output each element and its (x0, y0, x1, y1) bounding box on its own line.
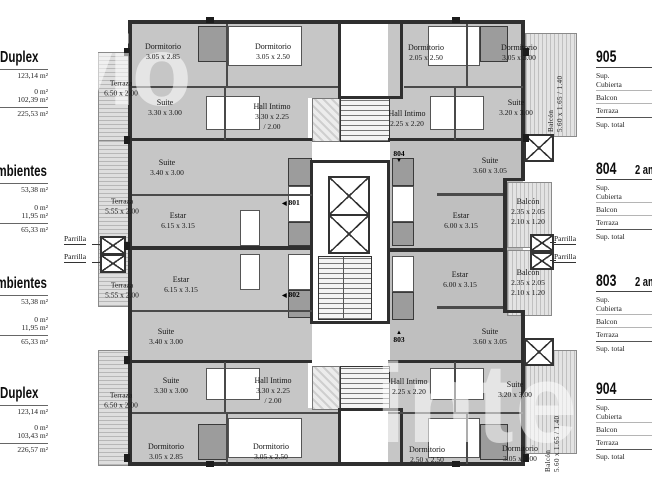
divider (0, 335, 48, 336)
right-block-804: 8042 ambientes Sup. Cubierta Balcon Terr… (596, 160, 652, 241)
room-label: Suite3.40 x 3.00 (149, 327, 183, 347)
area-total: 225,53 m² (0, 110, 48, 119)
parrilla-label: Parrilla (554, 234, 576, 245)
area-value: 102,39 m² (0, 96, 48, 105)
unit-marker-804: 804▼ (393, 150, 404, 164)
wall (400, 408, 403, 466)
wall (132, 138, 312, 141)
balcony-label: Balcón 5.60 x 1.65 / 1.40 (547, 46, 564, 132)
row-label: Terraza (596, 438, 652, 450)
partition (437, 193, 503, 196)
room-label: Dormitorio3.05 x 2.50 (255, 42, 291, 62)
row-label: Sup. (596, 403, 652, 412)
elevator-icon (328, 176, 370, 216)
unit-type: 2 ambientes (635, 274, 652, 289)
row-label: Cubierta (596, 80, 652, 91)
parrilla-label: Parrilla (554, 252, 576, 263)
divider (0, 183, 48, 184)
block-title: Duplex (0, 386, 38, 402)
room-label: Dormitorio3.05 x 3.00 (501, 43, 537, 63)
wall-tick (124, 356, 130, 364)
room-label: Dormitorio3.05 x 2.50 (253, 442, 289, 462)
arrow-down-icon: ▼ (393, 158, 404, 164)
room-label: Balcón2.35 x 2.052.10 x 1.20 (511, 268, 545, 298)
leader-line (92, 262, 100, 263)
partition (466, 414, 468, 464)
row-label: Terraza (596, 106, 652, 118)
terrace-label: Terraza6.50 x 2.00 (104, 390, 138, 410)
area-value: 103,43 m² (0, 432, 48, 441)
wall (387, 160, 390, 324)
divider (0, 443, 48, 444)
row-label: Sup. (596, 295, 652, 304)
terrace-label: Terraza5.55 x 2.00 (105, 280, 139, 300)
partition (454, 362, 456, 412)
wall (503, 178, 525, 181)
partition (226, 414, 228, 464)
wall (338, 96, 403, 99)
wall-tick (206, 17, 214, 23)
row-label: Sup. total (596, 232, 652, 241)
wall (338, 408, 403, 411)
apartment-bottom-left-ext (308, 408, 340, 464)
leader-line (550, 260, 556, 261)
room-label: Suite3.20 x 3.00 (498, 380, 532, 400)
partition (388, 412, 523, 414)
stair-core-rail (343, 256, 344, 318)
closet-block (392, 222, 414, 246)
room-label: Suite3.40 x 3.00 (150, 158, 184, 178)
wall-tick (523, 134, 529, 142)
wall-tick (452, 17, 460, 23)
unit-marker-802: ◀ 802 (282, 290, 300, 299)
terrace-label: Terraza6.50 x 2.00 (104, 78, 138, 98)
area-value: 123,14 m² (0, 72, 48, 81)
closet-block (392, 292, 414, 320)
stair-top (340, 98, 390, 142)
elevator-icon (328, 214, 370, 254)
stair-bottom (340, 366, 390, 410)
left-block-ambientes-bottom: Ambientes 53,38 m² 0 m² 11,95 m² 65,33 m… (0, 276, 48, 347)
void-hatch-bottom (312, 366, 340, 410)
wall (310, 160, 390, 163)
divider (0, 405, 48, 406)
right-block-803: 8032 ambientes Sup. Cubierta Balcon Terr… (596, 272, 652, 353)
bathroom-block (288, 254, 312, 290)
row-label: Sup. (596, 71, 652, 80)
parrilla-label: Parrilla (64, 252, 86, 263)
area-total: 65,33 m² (0, 226, 48, 235)
bathroom-block (430, 368, 484, 400)
row-label: Sup. total (596, 120, 652, 129)
room-label: Estar6.00 x 3.15 (443, 270, 477, 290)
wall-tick (452, 461, 460, 467)
wall (132, 360, 312, 363)
arrow-left-icon: ◀ (282, 293, 287, 299)
row-label: Balcon (596, 205, 652, 216)
right-block-905: 905 Sup. Cubierta Balcon Terraza Sup. to… (596, 48, 652, 129)
row-label: Sup. total (596, 344, 652, 353)
room-label: Suite3.20 x 3.00 (499, 98, 533, 118)
row-label: Terraza (596, 218, 652, 230)
partition (132, 86, 338, 88)
partition (466, 24, 468, 86)
room-label: Suite3.60 x 3.05 (473, 156, 507, 176)
partition (132, 310, 312, 312)
room-label: Hall Intimo3.30 x 2.25/ 2.00 (254, 376, 291, 406)
room-label: Estar6.15 x 3.15 (164, 275, 198, 295)
unit-number: 904 (596, 380, 616, 397)
divider (0, 69, 48, 70)
closet-block (198, 26, 228, 62)
area-total: 226,57 m² (0, 446, 48, 455)
terrace-label: Terraza5.55 x 2.00 (105, 196, 139, 216)
bathroom-block (392, 186, 414, 222)
row-label: Cubierta (596, 412, 652, 423)
parrilla-label: Parrilla (64, 234, 86, 245)
row-label: Cubierta (596, 304, 652, 315)
wall (132, 246, 312, 250)
block-title: Ambientes (0, 164, 47, 180)
wall (310, 321, 390, 324)
room-label: Suite3.60 x 3.05 (473, 327, 507, 347)
room-label: Estar6.00 x 3.15 (444, 211, 478, 231)
room-label: Dormitorio3.05 x 2.85 (145, 42, 181, 62)
unit-type: 2 ambientes (635, 162, 652, 177)
row-label: Terraza (596, 330, 652, 342)
leader-line (550, 242, 556, 243)
parrilla-box-icon (100, 236, 126, 255)
leader-line (92, 244, 100, 245)
block-title: Ambientes (0, 276, 47, 292)
row-label: Balcon (596, 425, 652, 436)
room-label: Suite3.30 x 3.00 (148, 98, 182, 118)
bathroom-block (430, 96, 484, 130)
area-value: 11,95 m² (0, 324, 48, 333)
kitchen-block (240, 254, 260, 290)
stair-core (318, 256, 372, 320)
partition (404, 86, 523, 88)
area-total: 65,33 m² (0, 338, 48, 347)
closet-block (288, 222, 312, 246)
left-block-duplex-bottom: Duplex 123,14 m² 0 m² 103,43 m² 226,57 m… (0, 386, 48, 455)
partition (224, 362, 226, 412)
room-label: Hall Intimo2.25 x 2.20 (390, 377, 427, 397)
partition (437, 306, 503, 309)
parrilla-box-icon (100, 254, 126, 273)
area-value: 53,38 m² (0, 186, 48, 195)
room-label: Hall Intimo3.30 x 2.25/ 2.00 (253, 102, 290, 132)
row-label: Sup. total (596, 452, 652, 461)
partition (224, 88, 226, 140)
wall (338, 408, 341, 466)
room-label: Estar6.15 x 3.15 (161, 211, 195, 231)
floorplan-page: Duplex 123,14 m² 0 m² 102,39 m² 225,53 m… (0, 0, 652, 480)
balcony-label: Balcón 5.60 x 1.65 / 1.40 (544, 386, 561, 472)
wall-tick (124, 48, 130, 56)
area-value: 123,14 m² (0, 408, 48, 417)
room-label: Hall Intimo2.25 x 2.20 (388, 109, 425, 129)
closet-block (198, 424, 228, 460)
bathroom-block (206, 368, 260, 400)
room-label: Dormitorio3.05 x 3.00 (502, 444, 538, 464)
partition (132, 194, 312, 196)
unit-number: 905 (596, 48, 616, 65)
void-hatch-top (312, 98, 340, 142)
closet-block (288, 158, 312, 186)
wall-tick (124, 454, 130, 462)
service-shaft-icon (524, 338, 554, 366)
unit-number: 803 (596, 272, 616, 289)
left-block-duplex-top: Duplex 123,14 m² 0 m² 102,39 m² 225,53 m… (0, 50, 48, 119)
partition (454, 88, 456, 140)
room-label: Suite3.30 x 3.00 (154, 376, 188, 396)
wall (338, 20, 341, 98)
partition (226, 24, 228, 86)
wall-tick (124, 136, 130, 144)
kitchen-block (240, 210, 260, 246)
right-block-904: 904 Sup. Cubierta Balcon Terraza Sup. to… (596, 380, 652, 461)
block-title: Duplex (0, 50, 38, 66)
divider (0, 107, 48, 108)
wall (400, 20, 403, 98)
room-label: Dormitorio2.05 x 2.50 (408, 43, 444, 63)
wall-tick (124, 242, 130, 250)
bathroom-block (392, 256, 414, 292)
left-block-ambientes-top: Ambientes 53,38 m² 0 m² 11,95 m² 65,33 m… (0, 164, 48, 235)
row-label: Balcon (596, 93, 652, 104)
bathroom-block (206, 96, 260, 130)
unit-number: 804 (596, 160, 616, 177)
wall (503, 178, 507, 312)
row-label: Cubierta (596, 192, 652, 203)
row-label: Balcon (596, 317, 652, 328)
room-label: Dormitorio2.50 x 2.50 (409, 445, 445, 465)
wall-tick (206, 461, 214, 467)
unit-marker-801: ◀ 801 (282, 198, 300, 207)
arrow-left-icon: ◀ (282, 201, 287, 207)
wall (310, 160, 313, 324)
divider (0, 295, 48, 296)
room-label: Balcón2.35 x 2.052.10 x 1.20 (511, 197, 545, 227)
wall (390, 248, 505, 252)
row-label: Sup. (596, 183, 652, 192)
room-label: Dormitorio3.05 x 2.85 (148, 442, 184, 462)
area-value: 53,38 m² (0, 298, 48, 307)
partition (132, 412, 338, 414)
unit-marker-803: ▲803 (393, 330, 404, 344)
area-value: 11,95 m² (0, 212, 48, 221)
parrilla-box-icon (530, 234, 554, 252)
divider (0, 223, 48, 224)
